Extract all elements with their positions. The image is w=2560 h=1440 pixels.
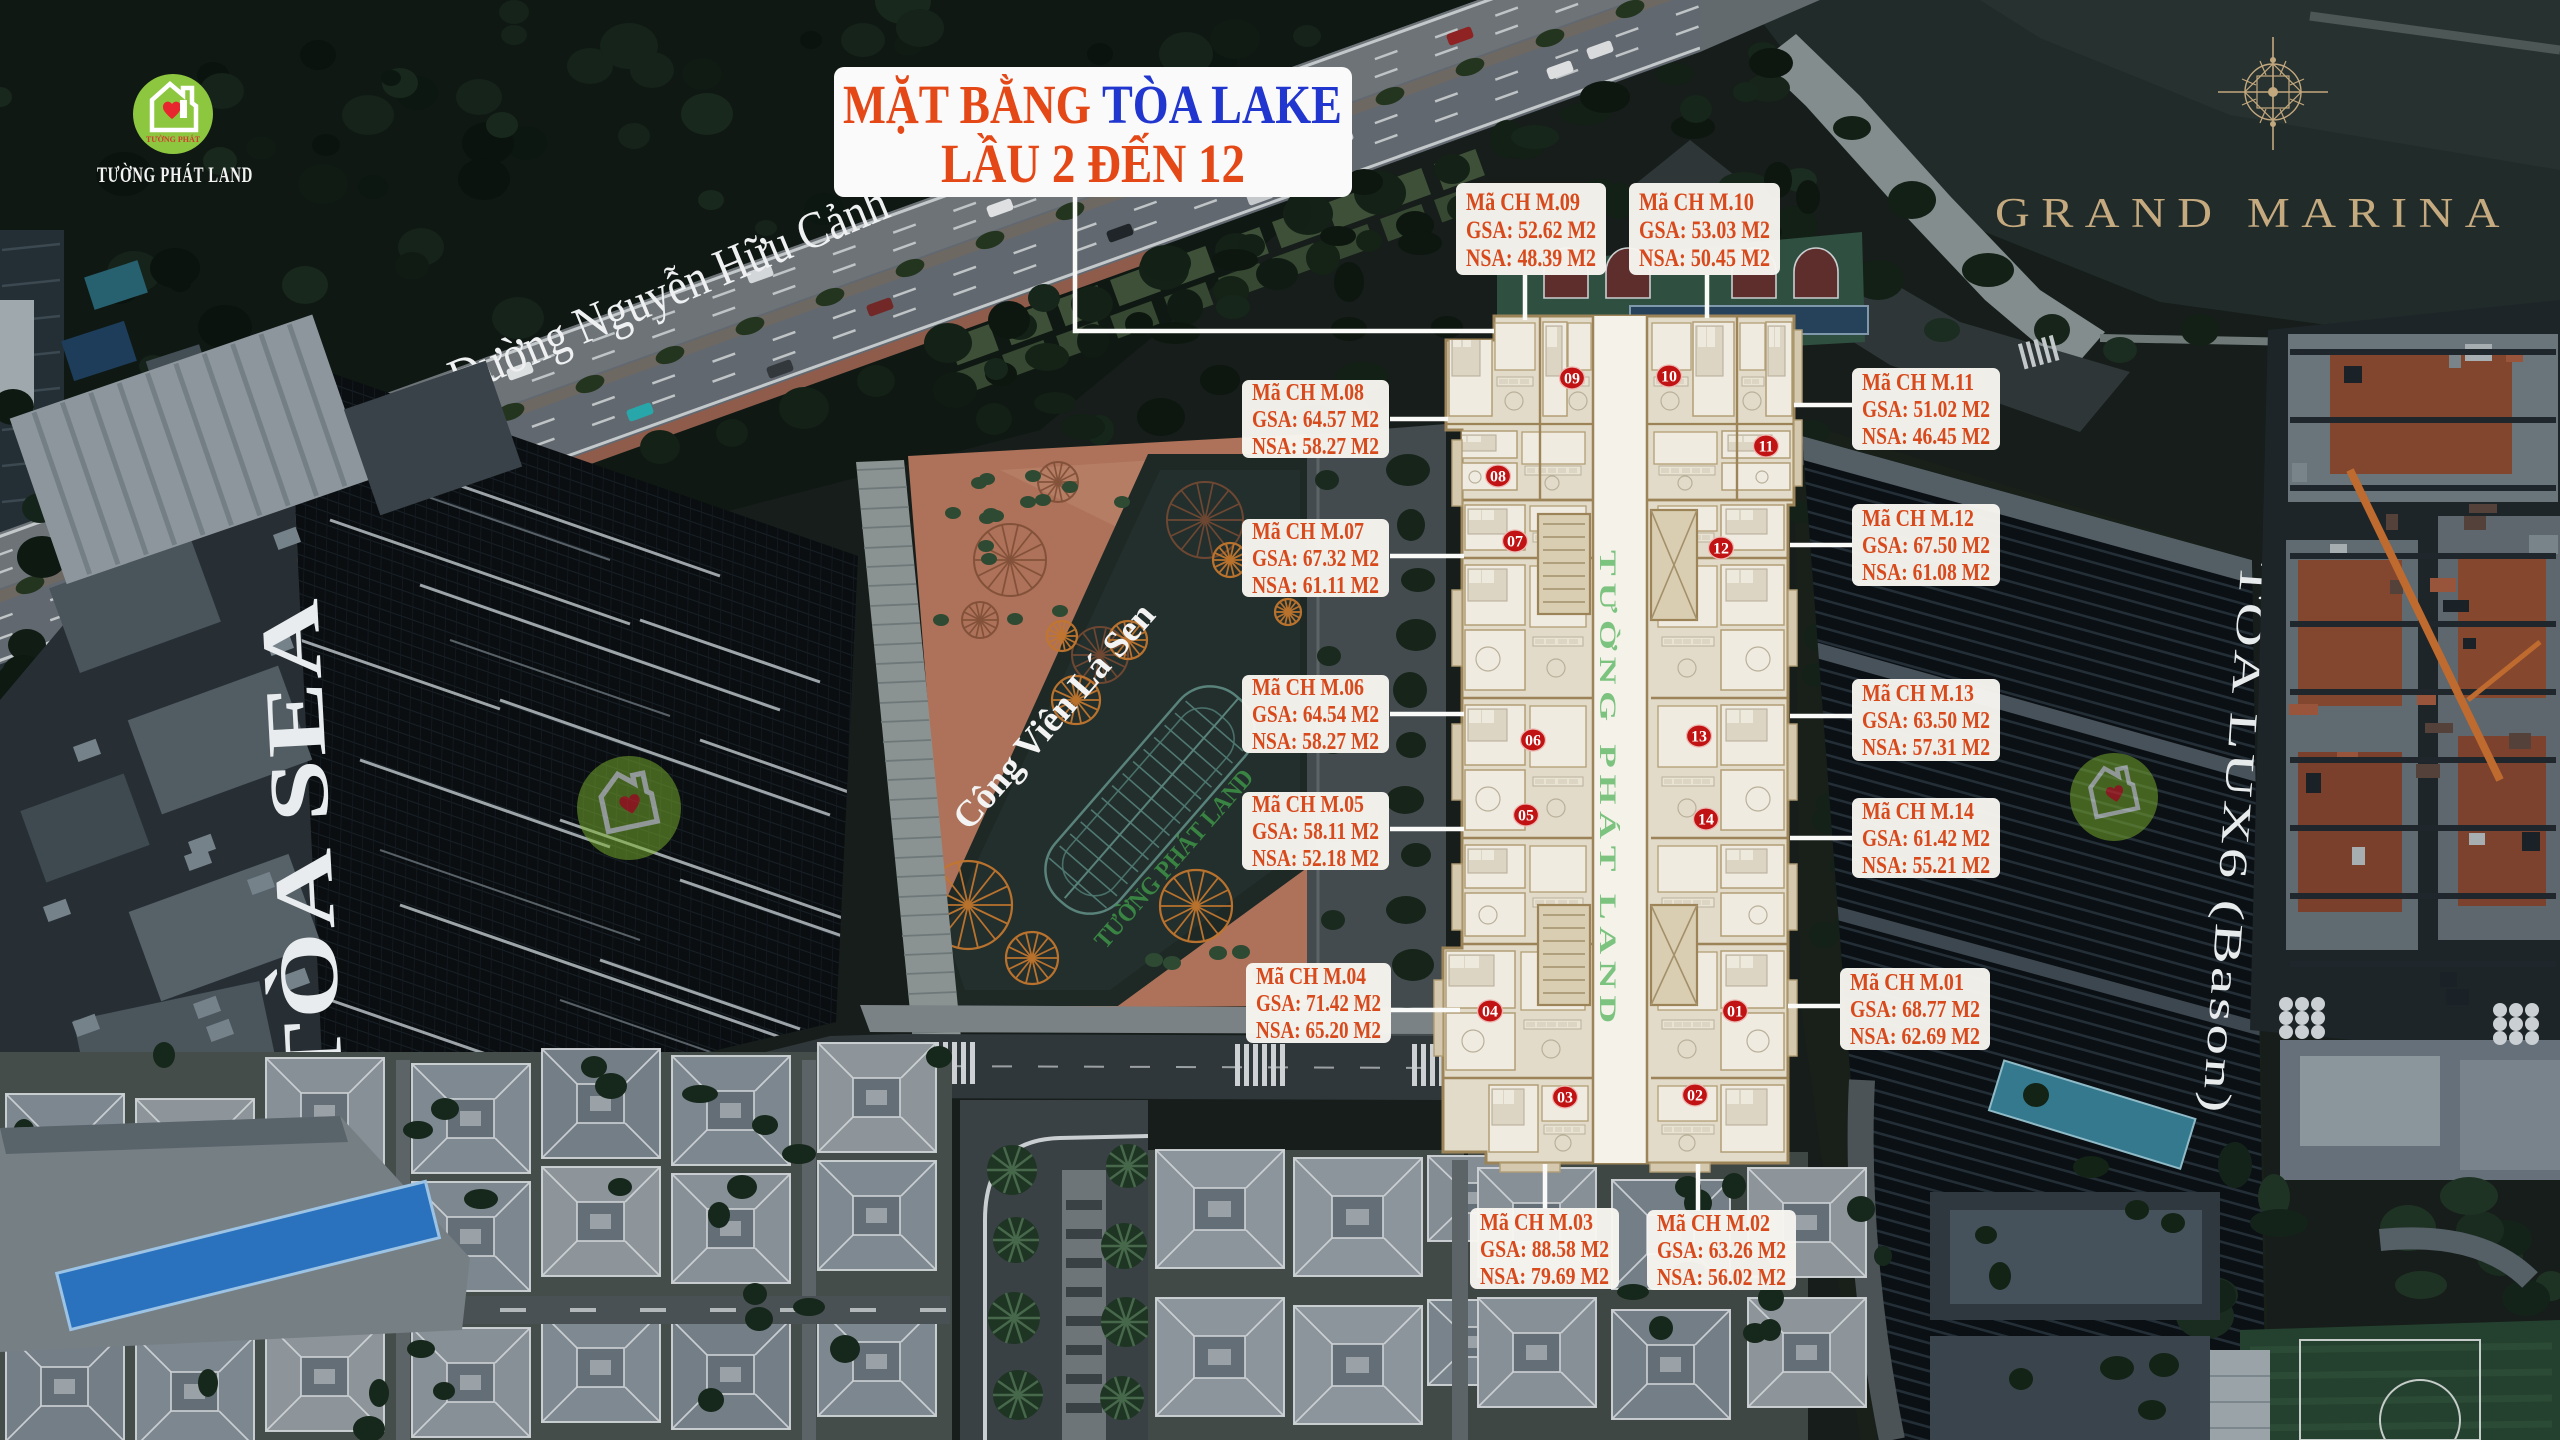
svg-text:01: 01 bbox=[1727, 1004, 1743, 1021]
svg-text:12: 12 bbox=[1713, 541, 1729, 558]
svg-text:GSA: 61.42 M2: GSA: 61.42 M2 bbox=[1862, 826, 1990, 852]
svg-text:GSA: 53.03 M2: GSA: 53.03 M2 bbox=[1639, 217, 1770, 244]
svg-text:NSA: 65.20 M2: NSA: 65.20 M2 bbox=[1256, 1018, 1381, 1044]
svg-text:NSA: 50.45 M2: NSA: 50.45 M2 bbox=[1639, 245, 1770, 272]
svg-text:GSA: 64.54 M2: GSA: 64.54 M2 bbox=[1252, 702, 1379, 728]
svg-text:Mã CH M.05: Mã CH M.05 bbox=[1252, 792, 1364, 818]
svg-text:Mã CH M.09: Mã CH M.09 bbox=[1466, 189, 1580, 216]
svg-text:GSA: 68.77 M2: GSA: 68.77 M2 bbox=[1850, 997, 1980, 1023]
svg-text:Mã CH M.08: Mã CH M.08 bbox=[1252, 380, 1364, 406]
svg-text:NSA: 55.21 M2: NSA: 55.21 M2 bbox=[1862, 853, 1990, 879]
svg-text:GSA: 52.62 M2: GSA: 52.62 M2 bbox=[1466, 217, 1596, 244]
svg-text:14: 14 bbox=[1698, 812, 1714, 829]
svg-text:Mã CH M.07: Mã CH M.07 bbox=[1252, 519, 1364, 545]
svg-text:04: 04 bbox=[1482, 1004, 1498, 1021]
svg-text:Mã CH M.10: Mã CH M.10 bbox=[1639, 189, 1754, 216]
svg-text:06: 06 bbox=[1525, 733, 1541, 750]
svg-text:TƯỜNG PHÁT: TƯỜNG PHÁT bbox=[146, 134, 201, 144]
svg-text:NSA: 61.11 M2: NSA: 61.11 M2 bbox=[1252, 573, 1379, 599]
svg-text:10: 10 bbox=[1661, 369, 1677, 386]
svg-text:GSA: 71.42 M2: GSA: 71.42 M2 bbox=[1256, 991, 1381, 1017]
svg-text:GSA: 63.50 M2: GSA: 63.50 M2 bbox=[1862, 708, 1990, 734]
svg-text:08: 08 bbox=[1490, 469, 1506, 486]
svg-text:GSA: 51.02 M2: GSA: 51.02 M2 bbox=[1862, 397, 1990, 423]
svg-text:NSA: 58.27 M2: NSA: 58.27 M2 bbox=[1252, 729, 1379, 755]
svg-text:NSA: 52.18 M2: NSA: 52.18 M2 bbox=[1252, 846, 1379, 872]
svg-text:13: 13 bbox=[1691, 729, 1707, 746]
svg-text:11: 11 bbox=[1758, 439, 1773, 456]
svg-text:NSA: 61.08 M2: NSA: 61.08 M2 bbox=[1862, 560, 1990, 586]
svg-text:GSA: 58.11 M2: GSA: 58.11 M2 bbox=[1252, 819, 1379, 845]
svg-text:Mã CH M.02: Mã CH M.02 bbox=[1657, 1211, 1770, 1237]
svg-text:TƯỜNG PHÁT LAND: TƯỜNG PHÁT LAND bbox=[97, 162, 253, 187]
svg-text:NSA: 46.45 M2: NSA: 46.45 M2 bbox=[1862, 424, 1990, 450]
svg-text:TÒA LAKE: TÒA LAKE bbox=[1102, 74, 1342, 135]
svg-text:Mã CH M.06: Mã CH M.06 bbox=[1252, 675, 1364, 701]
svg-text:07: 07 bbox=[1507, 534, 1523, 551]
svg-text:GSA: 67.32 M2: GSA: 67.32 M2 bbox=[1252, 546, 1379, 572]
svg-text:NSA: 58.27 M2: NSA: 58.27 M2 bbox=[1252, 434, 1379, 460]
svg-text:Mã CH M.03: Mã CH M.03 bbox=[1480, 1210, 1593, 1236]
svg-text:09: 09 bbox=[1564, 371, 1580, 388]
svg-text:NSA: 57.31 M2: NSA: 57.31 M2 bbox=[1862, 735, 1990, 761]
svg-text:03: 03 bbox=[1557, 1090, 1573, 1107]
svg-text:02: 02 bbox=[1687, 1088, 1703, 1105]
svg-text:Mã CH M.04: Mã CH M.04 bbox=[1256, 964, 1366, 990]
svg-text:GSA: 67.50 M2: GSA: 67.50 M2 bbox=[1862, 533, 1990, 559]
svg-text:NSA: 56.02 M2: NSA: 56.02 M2 bbox=[1657, 1265, 1786, 1291]
svg-text:Mã CH M.12: Mã CH M.12 bbox=[1862, 506, 1974, 532]
svg-text:NSA: 79.69 M2: NSA: 79.69 M2 bbox=[1480, 1264, 1609, 1290]
svg-text:MẶT BẰNG: MẶT BẰNG bbox=[843, 74, 1091, 135]
svg-text:05: 05 bbox=[1518, 808, 1534, 825]
svg-text:NSA: 48.39 M2: NSA: 48.39 M2 bbox=[1466, 245, 1596, 272]
svg-text:Mã CH M.14: Mã CH M.14 bbox=[1862, 799, 1974, 825]
svg-text:GSA: 64.57 M2: GSA: 64.57 M2 bbox=[1252, 407, 1379, 433]
svg-text:LẦU 2 ĐẾN 12: LẦU 2 ĐẾN 12 bbox=[941, 133, 1245, 194]
svg-text:GRAND MARINA: GRAND MARINA bbox=[1995, 191, 2511, 237]
svg-text:NSA: 62.69 M2: NSA: 62.69 M2 bbox=[1850, 1024, 1980, 1050]
svg-text:GSA: 88.58 M2: GSA: 88.58 M2 bbox=[1480, 1237, 1609, 1263]
svg-text:GSA: 63.26 M2: GSA: 63.26 M2 bbox=[1657, 1238, 1786, 1264]
svg-text:Mã CH M.13: Mã CH M.13 bbox=[1862, 681, 1974, 707]
svg-text:Mã CH M.11: Mã CH M.11 bbox=[1862, 370, 1974, 396]
svg-text:TƯỜNG PHÁT LAND: TƯỜNG PHÁT LAND bbox=[1595, 550, 1621, 1030]
svg-text:Mã CH M.01: Mã CH M.01 bbox=[1850, 970, 1964, 996]
